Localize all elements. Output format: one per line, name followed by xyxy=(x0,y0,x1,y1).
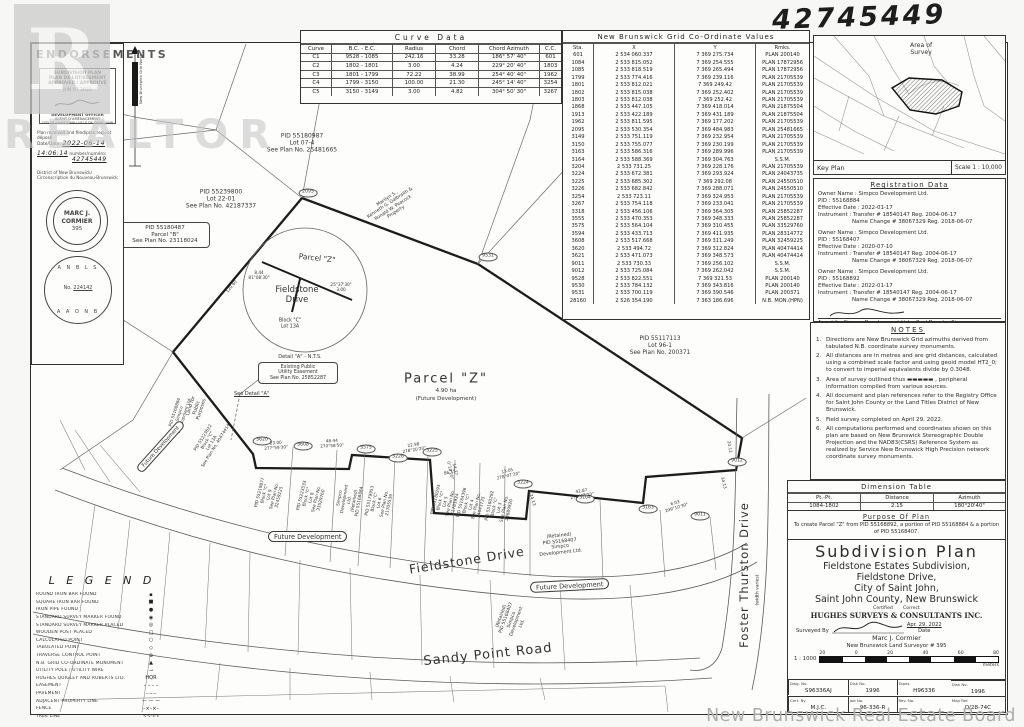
station-tag: 2095 xyxy=(299,189,318,198)
coord-cell-x: 2 533 494.72 xyxy=(593,245,674,252)
coord-cell-x: 2 533 588.369 xyxy=(593,156,674,163)
curve-data-table: Curve Data Curve B.C. - E.C. Radius Chor… xyxy=(300,30,562,104)
coordinate-row: 3318 2 533 456.106 7 369 364.305 PLAN 25… xyxy=(563,208,809,215)
station-tag: 3224 xyxy=(514,480,533,489)
reg-instrument: Instrument : Transfer # 18540147 Reg. 20… xyxy=(818,212,1001,219)
coord-cell-x: 2 533 517.668 xyxy=(593,238,674,245)
date-value-handwritten: 2022-06-14 xyxy=(62,139,105,147)
curve-cell: 3.00 xyxy=(392,88,435,96)
coordinate-row: 1868 2 533 447.105 7 369 418.014 PLAN 21… xyxy=(563,104,809,111)
stamp-line3: APPROVED / APPROUVÉ xyxy=(42,81,114,86)
coord-cell-rmks: PLAN 24550510 xyxy=(755,178,809,185)
coordinate-row: 1801 2 533 812.021 7 369 249.42 PLAN 217… xyxy=(563,81,809,88)
coord-cell-sta: 9530 xyxy=(563,282,593,289)
notes-panel: NOTES 1. Directions are New Brunswick Gr… xyxy=(810,322,1006,480)
curve-cell: 229° 20' 40" xyxy=(478,62,539,70)
coord-cell-rmks: PLAN 32459225 xyxy=(755,238,809,245)
note-text: Area of survey outlined thus ▬▬▬▬▬ , per… xyxy=(826,377,1000,391)
info-cell-label: Rev. No. xyxy=(899,698,915,703)
coord-cell-rmks: PLAN 24550510 xyxy=(755,185,809,192)
legend: L E G E N D ROUND IRON BAR FOUND ▪ SQUAR… xyxy=(36,574,168,720)
coord-cell-x: 2 533 822.551 xyxy=(593,275,674,282)
detail-dim2-label: 25°37'30" 3.00 xyxy=(330,283,351,293)
plan-subtitle-4: Saint John County, New Brunswick xyxy=(790,594,1003,605)
coord-cell-sta: 3164 xyxy=(563,156,593,163)
station-tag: 9011 xyxy=(691,512,710,521)
coord-col-header: Rmks. xyxy=(755,44,809,52)
coord-cell-y: 7 369 239.116 xyxy=(674,74,755,81)
curve-col-header: C.C. xyxy=(539,45,561,53)
surveyor-name: Marc J. Cormier xyxy=(790,634,1003,642)
curve-cell: 601 xyxy=(539,54,561,62)
dimension-table-header: Pt.-Pt. Distance Azimuth xyxy=(788,493,1005,502)
legend-item-label: CALCULATED POINT xyxy=(36,638,134,643)
title-block: Dimension Table Pt.-Pt. Distance Azimuth… xyxy=(787,480,1006,713)
legend-item-symbol: ● xyxy=(134,607,168,613)
coord-cell-x: 2 533 682.842 xyxy=(593,185,674,192)
legend-item-label: FENCE xyxy=(36,706,134,711)
coord-cell-rmks: PLAN 21875504 xyxy=(755,104,809,111)
anbls-number: 224142 xyxy=(73,285,92,291)
legend-item-symbol: □ xyxy=(134,630,168,636)
stamp-officer1: DEVELOPMENT OFFICER xyxy=(42,112,114,117)
legend-item-label: ADJACENT PROPERTY LINE xyxy=(36,699,134,704)
coord-cell-x: 2 533 723.11 xyxy=(593,193,674,200)
plan-subtitle-2: Fieldstone Drive, xyxy=(790,572,1003,583)
coordinate-row: 3204 2 533 731.25 7 369 228.176 PLAN 217… xyxy=(563,163,809,170)
area-of-survey-label: Area of Survey xyxy=(910,42,932,57)
coord-cell-rmks: PLAN 40474414 xyxy=(755,252,809,259)
scale-units: meters xyxy=(819,663,999,668)
coord-cell-rmks: PLAN 21875504 xyxy=(755,111,809,118)
curve-table-row: C5 3150 - 3149 3.00 4.82 304° 50' 30" 32… xyxy=(301,87,561,96)
anbls-no: No. 224142 xyxy=(45,285,111,291)
foster-thurston-width-note: (width varies) xyxy=(755,575,760,606)
note-item: 5. Field survey completed on April 29, 2… xyxy=(816,417,1000,424)
parcel-z-future-label: (Future Development) xyxy=(416,396,477,402)
curve-col-header: Chord xyxy=(435,45,478,53)
legend-item-label: TABULATED POINT xyxy=(36,645,134,650)
surveyor-title: New Brunswick Land Surveyor # 395 xyxy=(790,643,1003,649)
curve-table-row: C1 9528 - 1085 242.16 33.28 186° 57' 40"… xyxy=(301,53,561,62)
dimension-table: Dimension Table Pt.-Pt. Distance Azimuth… xyxy=(788,481,1005,511)
coordinate-row: 601 2 534 060.337 7 369 275.734 PLAN 200… xyxy=(563,52,809,59)
reg-name-change: Name Change # 38067329 Reg. 2018-06-07 xyxy=(818,219,1001,226)
note-text: Field survey completed on April 29, 2022… xyxy=(826,417,943,424)
curve-cell: 72.22 xyxy=(392,71,435,79)
reg-effective-date: Effective Date : 2022-01-17 xyxy=(818,283,1001,290)
coord-cell-y: 7 369 348.333 xyxy=(674,215,755,222)
coordinate-row: 1085 2 533 818.519 7 369 265.494 PLAN 17… xyxy=(563,66,809,73)
survey-date-label: Date xyxy=(918,628,930,634)
curve-table-row: C3 1801 - 1799 72.22 38.99 254° 40' 40" … xyxy=(301,70,561,79)
coord-cell-sta: 3620 xyxy=(563,245,593,252)
dim-col-header: Pt.-Pt. xyxy=(788,494,860,502)
legend-item: N.B. GRID CO-ORDINATE MONUMENT ▲ xyxy=(36,659,168,667)
coordinate-row: 3226 2 533 682.842 7 369 288.071 PLAN 24… xyxy=(563,185,809,192)
legend-item: CALCULATED POINT ○ xyxy=(36,637,168,645)
coord-cell-rmks: PLAN 17872956 xyxy=(755,66,809,73)
seal-name1: MARC J. xyxy=(47,210,107,217)
reg-pid: PID : 55168884 xyxy=(818,198,1001,205)
dim-label: 23.00 277°59'30" xyxy=(264,440,288,452)
coordinate-row: 3594 2 533 433.713 7 369 411.935 PLAN 28… xyxy=(563,230,809,237)
legend-item-symbol: HQR xyxy=(134,675,168,681)
note-number: 2. xyxy=(816,353,826,374)
approval-stamp: SUBDIVISION PLAN PLAN DE LOTISSEMENT APP… xyxy=(39,68,116,124)
info-cell-label: Cert. By xyxy=(790,698,806,703)
legend-item-label: N.B. GRID CO-ORDINATE MONUMENT xyxy=(36,661,134,666)
coord-cell-y: 7 369 232.954 xyxy=(674,133,755,140)
coordinate-table-body: 601 2 534 060.337 7 369 275.734 PLAN 200… xyxy=(563,52,809,305)
label-simpco-retained2: (Retained) PID 55168407 Simpco Developme… xyxy=(537,532,582,559)
scale-tick: 40 xyxy=(922,651,928,656)
station-tag: 3575 xyxy=(357,445,376,454)
coord-cell-rmks: PLAN 25852287 xyxy=(755,215,809,222)
coordinate-row: 3575 2 533 564.104 7 369 310.455 PLAN 33… xyxy=(563,223,809,230)
coord-cell-sta: 601 xyxy=(563,52,593,59)
coord-cell-rmks: PLAN 21705539 xyxy=(755,193,809,200)
curve-cell: 1802 - 1801 xyxy=(331,62,392,70)
reg-name-change: Name Change # 38067329 Reg. 2018-06-07 xyxy=(818,297,1001,304)
label-simpco-retained1: Simpco Development Ltd. (Retained) PID 5… xyxy=(335,483,365,517)
coord-cell-rmks: PLAN 21705539 xyxy=(755,148,809,155)
coord-cell-rmks: PLAN 200371 xyxy=(755,290,809,297)
coord-cell-y: 7 369 324.953 xyxy=(674,193,755,200)
coord-cell-sta: 28160 xyxy=(563,297,593,304)
info-cell: Map Ref. O/28-74C xyxy=(951,696,1005,712)
coordinate-row: 2095 2 533 530.354 7 369 484.983 PLAN 25… xyxy=(563,126,809,133)
legend-item-label: STANDARD SURVEY MARKER FOUND xyxy=(36,615,134,620)
coord-cell-y: 7 369 390.546 xyxy=(674,290,755,297)
note-text: All distances are in metres and are grid… xyxy=(826,353,1000,374)
number-value-handwritten: 42745449 xyxy=(72,156,107,163)
coord-cell-sta: 3267 xyxy=(563,200,593,207)
coord-cell-x: 2 533 422.189 xyxy=(593,111,674,118)
coord-cell-x: 2 533 812.038 xyxy=(593,96,674,103)
coordinate-row: 9528 2 533 822.551 7 369 321.53 PLAN 200… xyxy=(563,275,809,282)
legend-item: IRON PIPE FOUND ● xyxy=(36,606,168,614)
scale-tick: 20 xyxy=(819,651,825,656)
curve-cell: 4.82 xyxy=(435,88,478,96)
coord-cell-sta: 1913 xyxy=(563,111,593,118)
future-development-oval-2: Future Development xyxy=(268,531,347,542)
anbls-no-label: No. xyxy=(64,285,72,291)
coord-cell-rmks: PLAN 40474414 xyxy=(755,245,809,252)
reg-owner: Owner Name : Simpco Development Ltd. xyxy=(818,269,1001,276)
curve-cell: 1801 - 1799 xyxy=(331,71,392,79)
coord-cell-y: 7 369 311.249 xyxy=(674,238,755,245)
curve-col-header: Curve xyxy=(301,45,331,53)
info-cell-value: 96-336-R xyxy=(849,705,897,711)
dim-label: 20.12 xyxy=(726,441,733,454)
coord-cell-rmks: PLAN 28314772 xyxy=(755,230,809,237)
coord-cell-sta: 1799 xyxy=(563,74,593,81)
curve-table-row: C4 1799 - 3150 100.00 21.30 245° 14' 40"… xyxy=(301,78,561,87)
coord-cell-x: 2 533 471.073 xyxy=(593,252,674,259)
coord-cell-sta: 1085 xyxy=(563,66,593,73)
legend-item-label: TREE LINE xyxy=(36,714,134,719)
coord-cell-y: 7 369 288.071 xyxy=(674,185,755,192)
purpose-text: To create Parcel "Z" from PID 55168892, … xyxy=(792,522,1001,536)
stamp-line2: PLAN DE LOTISSEMENT xyxy=(42,76,114,81)
coord-cell-y: 7 369 254.555 xyxy=(674,59,755,66)
anbls-top: A N B L S xyxy=(45,265,111,271)
date-row: Date/Date: 2022-06-14 xyxy=(37,139,105,147)
purpose-of-plan: Purpose Of Plan To create Parcel "Z" fro… xyxy=(788,511,1005,540)
coord-cell-sta: 3555 xyxy=(563,215,593,222)
detail-fieldstone-label: Fieldstone Drive xyxy=(275,285,318,305)
note-number: 1. xyxy=(816,337,826,351)
coord-cell-sta: 1802 xyxy=(563,89,593,96)
coord-cell-x: 2 533 530.354 xyxy=(593,126,674,133)
coord-cell-sta: 2095 xyxy=(563,126,593,133)
info-cell: Dwg. No. S96336AJ xyxy=(788,680,848,695)
seal-name2: CORMIER xyxy=(47,218,107,225)
note-item: 2. All distances are in metres and are g… xyxy=(816,353,1000,374)
dimension-row: 1084-1802 2.15 180°20'40" xyxy=(788,502,1005,511)
info-cell: Rev. No. xyxy=(897,696,951,712)
legend-item: SQUARE IRON BAR FOUND ■ xyxy=(36,599,168,607)
station-tag: 3163 xyxy=(639,505,658,514)
coord-cell-sta: 3226 xyxy=(563,185,593,192)
registration-panel: Registration Data Owner Name : Simpco De… xyxy=(813,178,1006,322)
title-block-info-grid: Dwg. No. S96336AJ Disk No. 1996 Tapes H9… xyxy=(788,679,1005,712)
registration-entry: Owner Name : Simpco Development Ltd. PID… xyxy=(818,191,1001,226)
legend-item-symbol: – – – – xyxy=(134,683,168,689)
note-number: 4. xyxy=(816,393,826,414)
info-cell-value: M.J.C. xyxy=(789,705,848,711)
coord-cell-sta: 3608 xyxy=(563,238,593,245)
coord-cell-x: 2 533 774.416 xyxy=(593,74,674,81)
info-cell: Cert. By M.J.C. xyxy=(788,696,848,712)
scale-ratio: 1 : 1000 xyxy=(794,656,816,662)
curve-cell: 242.16 xyxy=(392,54,435,62)
curve-cell: 304° 50' 30" xyxy=(478,88,539,96)
note-item: 3. Area of survey outlined thus ▬▬▬▬▬ , … xyxy=(816,377,1000,391)
coord-cell-sta: 3163 xyxy=(563,148,593,155)
note-text: All computations performed and coordinat… xyxy=(826,426,1000,461)
station-tag: 9531 xyxy=(479,253,498,262)
coord-cell-y: 7 369 364.305 xyxy=(674,208,755,215)
coordinate-row: 3149 2 533 751.119 7 369 232.954 PLAN 21… xyxy=(563,133,809,140)
coord-cell-y: 7 369 312.824 xyxy=(674,245,755,252)
coord-cell-sta: 1803 xyxy=(563,96,593,103)
coord-cell-sta: 1084 xyxy=(563,59,593,66)
info-cell-label: Map Ref. xyxy=(952,698,969,703)
coord-cell-sta: 3224 xyxy=(563,171,593,178)
info-cell-value: H96336 xyxy=(898,688,951,694)
dim-col-header: Azimuth xyxy=(933,494,1005,502)
legend-item-label: UTILITY POLE / UTILITY WIRE xyxy=(36,668,134,673)
coord-cell-rmks: S.S.M. xyxy=(755,156,809,163)
curve-cell: 3150 - 3149 xyxy=(331,88,392,96)
dim-label: 48.44 270°58'50" xyxy=(320,438,344,449)
stamp-officer3: CITY OF SAINT JOHN / VILLE DE SAINT JOHN xyxy=(42,121,114,125)
station-tag: 9012 xyxy=(728,458,747,467)
coord-cell-x: 2 533 731.25 xyxy=(593,163,674,170)
dim-cell: 1084-1802 xyxy=(788,503,860,511)
legend-item: TABULATED POINT ◇ xyxy=(36,644,168,652)
coordinate-row: 9531 2 533 700.119 7 369 390.546 PLAN 20… xyxy=(563,290,809,297)
dimension-table-body: 1084-1802 2.15 180°20'40" xyxy=(788,502,1005,511)
coord-cell-y: 7 369 233.041 xyxy=(674,200,755,207)
coord-cell-y: 7 369 249.42 xyxy=(674,81,755,88)
coordinate-row: 3621 2 533 471.073 7 369 348.573 PLAN 40… xyxy=(563,252,809,259)
station-tag: 3226 xyxy=(389,454,408,463)
curve-cell: 38.99 xyxy=(435,71,478,79)
legend-item: EASEMENT – – – – xyxy=(36,682,168,690)
coordinate-row: 3555 2 533 470.353 7 369 348.333 PLAN 25… xyxy=(563,215,809,222)
legend-item-symbol: ⊕ xyxy=(134,653,168,659)
info-cell-label: Dwg. No. xyxy=(790,681,808,686)
north-arrow: New Brunswick Grid North xyxy=(126,46,148,172)
scale-tick: 20 xyxy=(887,651,893,656)
anbls-bottom: A A O N B xyxy=(45,309,111,315)
detail-caption: Detail "A" - N.T.S. xyxy=(278,355,321,361)
coord-cell-rmks: PLAN 21705539 xyxy=(755,96,809,103)
note-item: 1. Directions are New Brunswick Grid azi… xyxy=(816,337,1000,351)
legend-item: PAVEMENT –·–·– xyxy=(36,690,168,698)
legend-item: TRAVERSE CONTROL POINT ⊕ xyxy=(36,652,168,660)
coord-cell-x: 2 533 755.077 xyxy=(593,141,674,148)
legend-item-label: IRON PIPE FOUND xyxy=(36,607,134,612)
curve-table-header: Curve B.C. - E.C. Radius Chord Chord Azi… xyxy=(301,44,561,53)
coord-cell-rmks: PLAN 21705539 xyxy=(755,74,809,81)
legend-item-label: SQUARE IRON BAR FOUND xyxy=(36,600,134,605)
scale-tick: 60 xyxy=(958,651,964,656)
coord-cell-sta: 3204 xyxy=(563,163,593,170)
coord-cell-sta: 1868 xyxy=(563,104,593,111)
coord-cell-x: 2 533 564.104 xyxy=(593,223,674,230)
info-cell-label: Tapes xyxy=(899,681,910,686)
key-plan-panel: Area of Survey Key Plan Scale 1 : 10,000 xyxy=(813,35,1006,175)
coord-cell-y: 7 369 343.816 xyxy=(674,282,755,289)
legend-item-symbol: ▪ xyxy=(134,592,168,598)
anbls-seal: A N B L S No. 224142 A A O N B xyxy=(44,256,112,324)
coord-cell-x: 2 533 456.106 xyxy=(593,208,674,215)
legend-item: UTILITY POLE / UTILITY WIRE ⊸ xyxy=(36,667,168,675)
plan-title-area: Subdivision Plan Fieldstone Estates Subd… xyxy=(788,540,1005,668)
coord-cell-y: 7 369 252.42 xyxy=(674,96,755,103)
reg-owner: Owner Name : Simpco Development Ltd. xyxy=(818,191,1001,198)
coord-cell-y: 7 369 411.935 xyxy=(674,230,755,237)
dim-cell: 2.15 xyxy=(860,503,933,511)
coord-cell-x: 2 533 725.084 xyxy=(593,267,674,274)
coordinate-row: 1962 2 533 811.595 7 369 177.202 PLAN 21… xyxy=(563,119,809,126)
info-cell-label: Job No. xyxy=(850,698,864,703)
coord-cell-x: 2 533 754.118 xyxy=(593,200,674,207)
time-value-handwritten: 14:06:14 xyxy=(37,150,68,157)
dim-col-header: Distance xyxy=(860,494,933,502)
station-tag: 3608 xyxy=(294,442,313,451)
coord-cell-rmks: PLAN 200140 xyxy=(755,282,809,289)
scale-bar-area: 1 : 1000 20020406080 meters xyxy=(790,651,1003,668)
scanned-subdivision-plan: { "watermarks": { "realtor_letter": "R",… xyxy=(0,0,1024,727)
legend-title: L E G E N D xyxy=(36,574,168,587)
coord-cell-rmks: PLAN 21705539 xyxy=(755,200,809,207)
coord-cell-rmks: PLAN 25852287 xyxy=(755,208,809,215)
coord-cell-x: 2 533 470.353 xyxy=(593,215,674,222)
coord-cell-x: 2 533 751.119 xyxy=(593,133,674,140)
legend-item-symbol: ⊸ xyxy=(134,668,168,674)
coord-cell-x: 2 534 060.337 xyxy=(593,52,674,59)
coordinate-row: 1084 2 533 815.052 7 369 254.555 PLAN 17… xyxy=(563,59,809,66)
coord-cell-y: 7 369 293.924 xyxy=(674,171,755,178)
legend-item-symbol: ◎ xyxy=(134,622,168,628)
coordinate-table: New Brunswick Grid Co-Ordinate Values St… xyxy=(562,30,810,320)
curve-cell: C4 xyxy=(301,79,331,87)
coord-cell-rmks: S.S.M. xyxy=(755,267,809,274)
date-label: Date/Date: xyxy=(37,142,61,147)
coord-cell-y: 7 369 289.996 xyxy=(674,148,755,155)
note-text: All document and plan references refer t… xyxy=(826,393,1000,414)
reg-effective-date: Effective Date : 2020-07-10 xyxy=(818,244,1001,251)
legend-item-label: HUGHES QUIGLEY AND ROBERTS LTD. xyxy=(36,676,134,681)
stamp-date: JUN 07 2022 xyxy=(42,88,114,93)
coord-cell-rmks: PLAN 21705539 xyxy=(755,141,809,148)
coord-cell-sta: 9528 xyxy=(563,275,593,282)
coord-col-header: X xyxy=(593,44,674,52)
plan-subtitle-1: Fieldstone Estates Subdivision, xyxy=(790,561,1003,572)
legend-item-symbol: ○ xyxy=(134,637,168,643)
coord-cell-sta: 3254 xyxy=(563,193,593,200)
coordinate-row: 9012 2 533 725.084 7 369 262.042 S.S.M. xyxy=(563,267,809,274)
coord-cell-x: 2 533 815.038 xyxy=(593,89,674,96)
easement-box-label: Existing Public Utility Easement See Pla… xyxy=(258,362,338,384)
info-cell-value: 1996 xyxy=(951,689,1005,695)
surveyor-seal: MARC J. CORMIER 395 xyxy=(46,190,108,252)
parcel-z-area-label: 4.90 ha xyxy=(436,388,457,394)
curve-cell: C1 xyxy=(301,54,331,62)
legend-item-label: TRAVERSE CONTROL POINT xyxy=(36,653,134,658)
curve-cell: 9528 - 1085 xyxy=(331,54,392,62)
coord-cell-sta: 9012 xyxy=(563,267,593,274)
north-arrow-label: New Brunswick Grid North xyxy=(139,54,143,104)
coord-cell-x: 2 533 730.33 xyxy=(593,260,674,267)
legend-item: WOODEN POST PLACED □ xyxy=(36,629,168,637)
reg-effective-date: Effective Date : 2022-01-17 xyxy=(818,205,1001,212)
foster-thurston-street-label: Foster Thurston Drive xyxy=(738,502,752,648)
coord-cell-rmks: PLAN 21705539 xyxy=(755,119,809,126)
coordinate-row: 1803 2 533 812.038 7 369 252.42 PLAN 217… xyxy=(563,96,809,103)
coord-cell-sta: 3575 xyxy=(563,223,593,230)
coord-cell-rmks: PLAN 33529760 xyxy=(755,223,809,230)
detail-dim1-label: 8.44 81°08'30" xyxy=(248,271,269,281)
coord-cell-y: 7 369 292.08 xyxy=(674,178,755,185)
endorsements-title: ENDORSEMENTS xyxy=(36,48,168,61)
coord-cell-x: 2 533 815.052 xyxy=(593,59,674,66)
coord-cell-sta: 3149 xyxy=(563,133,593,140)
coord-cell-y: 7 363 186.696 xyxy=(674,297,755,304)
label-lot-22-01: PID 55239800 Lot 22-01 See Plan No. 4218… xyxy=(186,188,256,209)
legend-item-symbol: –×–×– xyxy=(134,706,168,712)
curve-cell: 3254 xyxy=(539,79,561,87)
coord-cell-x: 2 533 685.302 xyxy=(593,178,674,185)
dim-cell: 180°20'40" xyxy=(933,503,1005,511)
scale-tick: 80 xyxy=(993,651,999,656)
legend-item: STANDARD SURVEY MARKER PLACED ◎ xyxy=(36,621,168,629)
curve-table-row: C2 1802 - 1801 3.00 4.24 229° 20' 40" 18… xyxy=(301,61,561,70)
note-item: 4. All document and plan references refe… xyxy=(816,393,1000,414)
coord-cell-sta: 9531 xyxy=(563,290,593,297)
info-cell: Disk No. 1996 xyxy=(848,680,897,695)
plan-subtitle-3: City of Saint John, xyxy=(790,583,1003,594)
coord-cell-y: 7 369 310.455 xyxy=(674,223,755,230)
curve-cell: 33.28 xyxy=(435,54,478,62)
coord-cell-rmks: PLAN 200140 xyxy=(755,52,809,59)
coord-cell-rmks: PLAN 200140 xyxy=(755,275,809,282)
